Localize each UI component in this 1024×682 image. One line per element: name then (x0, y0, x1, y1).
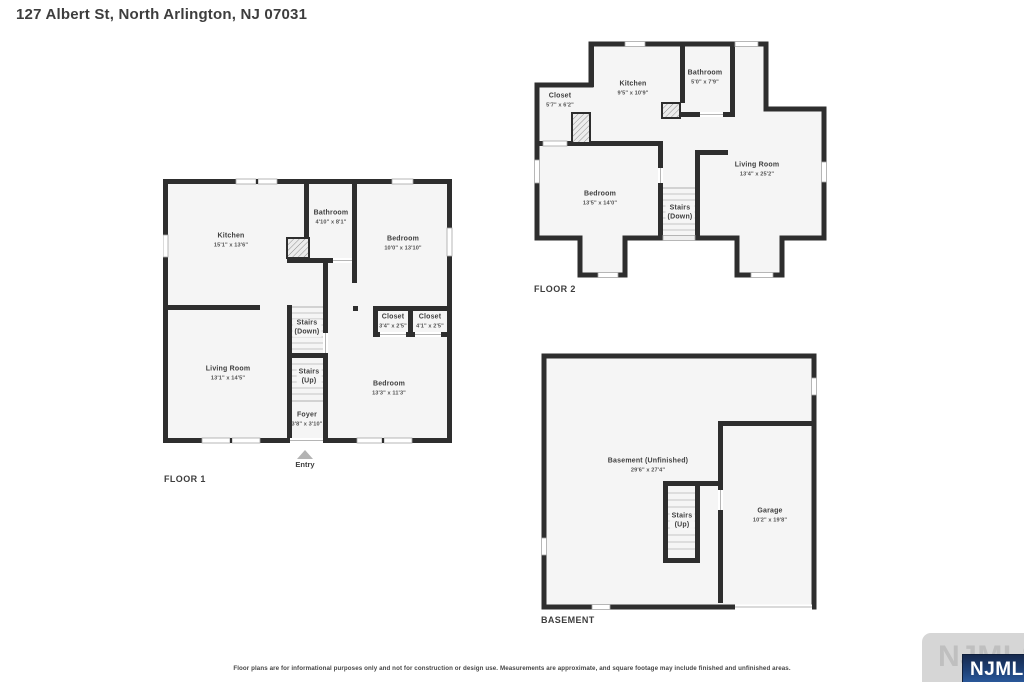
room-label-f1-bedroom-1: Bedroom 10'0" x 13'10" (384, 236, 421, 253)
disclaimer-text: Floor plans are for informational purpos… (0, 665, 1024, 672)
floor-1-tag: FLOOR 1 (164, 474, 206, 484)
floor-2-tag: FLOOR 2 (534, 284, 576, 294)
room-label-f1-closet-1: Closet 3'4" x 2'5" (379, 314, 407, 331)
room-label-f1-stairs-down: Stairs (Down) (293, 319, 322, 337)
room-label-f2-bedroom: Bedroom 13'5" x 14'0" (583, 191, 617, 208)
room-label-b-stairs-up: Stairs (Up) (670, 512, 695, 530)
room-label-b-basement: Basement (Unfinished) 29'6" x 27'4" (608, 458, 688, 475)
room-label-f1-stairs-up: Stairs (Up) (297, 368, 322, 386)
basement-tag: BASEMENT (541, 615, 595, 625)
room-label-f1-closet-2: Closet 4'1" x 2'5" (416, 314, 444, 331)
room-label-f1-living-room: Living Room 13'1" x 14'5" (206, 366, 251, 383)
room-label-f1-bedroom-2: Bedroom 13'3" x 11'3" (372, 381, 406, 398)
room-label-f1-bathroom: Bathroom 4'10" x 8'1" (314, 210, 349, 227)
floor-1-plan (163, 177, 455, 447)
njmls-badge-label: NJMLS (970, 659, 1024, 681)
room-label-f1-kitchen: Kitchen 15'1" x 13'6" (214, 233, 248, 250)
floor-2-plan (533, 40, 829, 280)
room-label-b-garage: Garage 10'2" x 19'8" (753, 508, 787, 525)
room-label-f2-bathroom: Bathroom 5'0" x 7'9" (688, 70, 723, 87)
entry-arrow-icon (297, 450, 313, 459)
entry-label: Entry (285, 460, 325, 469)
chimney-hatch (572, 113, 590, 143)
floor-plan-sheet: 127 Albert St, North Arlington, NJ 07031 (0, 0, 1024, 682)
chimney-hatch (662, 103, 680, 118)
basement-plan (540, 352, 822, 614)
room-label-f2-living-room: Living Room 13'4" x 25'2" (735, 162, 780, 179)
njmls-logo-badge: NJMLS (962, 654, 1024, 682)
chimney-hatch (287, 238, 309, 258)
room-label-f2-closet: Closet 5'7" x 6'2" (546, 93, 574, 110)
room-label-f2-kitchen: Kitchen 9'5" x 10'9" (618, 81, 649, 98)
page-title: 127 Albert St, North Arlington, NJ 07031 (16, 6, 307, 23)
room-label-f2-stairs-down: Stairs (Down) (666, 204, 695, 222)
room-label-f1-foyer: Foyer 3'8" x 3'10" (292, 412, 323, 429)
